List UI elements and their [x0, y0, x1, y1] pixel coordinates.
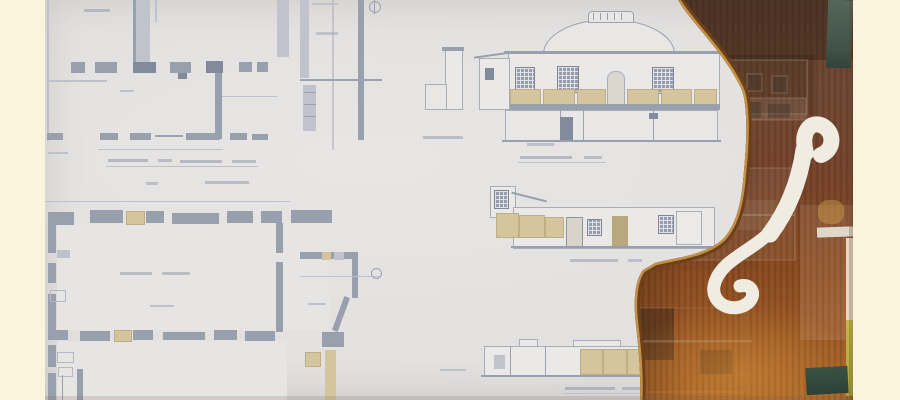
- partition-line: [560, 110, 561, 140]
- floor-slab: [503, 104, 720, 110]
- tower-cap: [442, 47, 464, 51]
- annotation-mark: [308, 303, 326, 305]
- section-title-mark: [584, 156, 602, 159]
- lantern-tick: [614, 13, 615, 20]
- dim-line: [98, 149, 223, 150]
- plan-wall-block: [133, 62, 156, 73]
- white-block: [676, 211, 702, 245]
- tower-wall: [445, 50, 463, 110]
- plan-wall-seg: [48, 225, 56, 253]
- ghost-block: [733, 102, 761, 118]
- photo-edge-shade: [849, 0, 853, 400]
- section-door: [612, 216, 628, 246]
- plan-wall: [358, 0, 364, 140]
- section-door: [566, 217, 583, 248]
- stair-line: [304, 104, 316, 105]
- annotation-mark: [48, 152, 68, 154]
- wood-light-right: [800, 205, 853, 340]
- ghost-window: [723, 72, 737, 88]
- base-line: [511, 246, 715, 248]
- angled-wall: [332, 296, 350, 332]
- plan-wall-seg: [227, 211, 253, 223]
- ghost-line: [645, 214, 795, 216]
- white-block: [494, 355, 505, 369]
- ghost-drawing-overlay: [628, 0, 853, 392]
- plan-wall-band: [300, 0, 309, 78]
- ghost-frame: [712, 60, 807, 114]
- lantern-tick: [621, 13, 622, 20]
- ghost-band: [714, 98, 806, 120]
- paper-crease: [332, 0, 334, 150]
- label-mark: [570, 259, 618, 262]
- plan-wall-seg: [133, 330, 153, 340]
- section-wall: [508, 52, 720, 110]
- plan-wall-seg: [90, 210, 123, 223]
- plan-wall-seg: [261, 211, 282, 223]
- plan-wall-block: [170, 62, 191, 73]
- section-body: [513, 207, 715, 249]
- plan-wall-seg: [276, 262, 283, 332]
- door-mark: [178, 73, 187, 79]
- plan-wall-band: [133, 0, 150, 62]
- violin-grain-texture: [600, 0, 853, 400]
- annotation-mark: [120, 90, 134, 92]
- plan-wall-seg: [291, 210, 332, 223]
- ghost-frame: [640, 308, 745, 392]
- plan-line: [155, 0, 157, 22]
- basement-door: [560, 117, 573, 140]
- wood-shade: [700, 55, 815, 115]
- plan-wall-block: [239, 62, 252, 72]
- room-label-mark: [150, 305, 174, 307]
- partition-line: [510, 346, 511, 375]
- plan-wall-seg: [214, 330, 237, 340]
- window-grid: [658, 215, 674, 234]
- title-underline: [563, 393, 647, 394]
- plan-line: [300, 79, 382, 81]
- background-light-strip: [846, 238, 853, 323]
- niche-mark: [57, 250, 70, 258]
- ghost-window: [747, 74, 762, 91]
- window-grid: [515, 67, 535, 94]
- violin-body: [635, 0, 853, 400]
- section-title-mark: [520, 156, 572, 159]
- basement-wall: [505, 110, 718, 142]
- background-glint: [818, 200, 844, 224]
- plan-title-mark: [108, 159, 148, 162]
- background-panel-teal: [826, 0, 853, 68]
- tan-strip: [325, 350, 336, 400]
- plan-wall-seg: [146, 211, 164, 223]
- plan-wall-seg: [48, 263, 56, 283]
- plan-wall-seg: [172, 213, 219, 224]
- f-hole-upper-eye: [804, 124, 831, 155]
- section-dome: [543, 19, 675, 54]
- cornice-line: [504, 51, 720, 54]
- ghost-block: [768, 104, 790, 118]
- window-grid: [494, 190, 509, 209]
- window-grid: [587, 219, 602, 236]
- background-olive-strip: [846, 320, 853, 396]
- closet-mark: [58, 367, 73, 377]
- plan-wall-seg: [276, 223, 283, 253]
- plan-wall-seg: [48, 373, 56, 400]
- wainscot-panel: [577, 89, 606, 106]
- ghost-block: [700, 350, 732, 374]
- plan-wall-line: [133, 0, 136, 62]
- lantern-tick: [600, 13, 601, 20]
- boundary-line: [45, 201, 290, 202]
- base-line: [481, 375, 653, 377]
- f-hole-stem: [770, 150, 804, 234]
- roof-bump: [573, 340, 621, 349]
- plan-wall-block: [257, 62, 268, 72]
- plan-wall-seg: [230, 133, 247, 140]
- tan-block: [126, 211, 145, 225]
- north-symbol: [369, 1, 381, 13]
- partition-line: [653, 110, 654, 140]
- stair-line: [304, 116, 316, 117]
- roof-slope: [511, 192, 546, 203]
- plan-wall-seg: [100, 133, 118, 140]
- plan-wall-seg: [163, 332, 205, 340]
- plan-wall-seg: [48, 294, 56, 332]
- banner-image: { "scene": { "type": "photograph-collage…: [0, 0, 900, 400]
- f-hole-lower-curl: [714, 230, 772, 308]
- tan-panel: [496, 213, 519, 238]
- wood-shade: [628, 140, 758, 270]
- dim-symbol: [371, 268, 382, 279]
- plan-room-fill: [57, 224, 329, 330]
- plan-title-mark: [180, 160, 222, 163]
- wainscot-panel: [543, 89, 575, 106]
- plan-wall: [47, 0, 49, 141]
- annex-window: [485, 68, 494, 80]
- ground-line: [502, 140, 721, 142]
- ghost-frame: [645, 168, 795, 260]
- plan-wall-seg: [245, 331, 275, 341]
- plan-wall-seg: [48, 330, 68, 340]
- wainscot-panel: [694, 89, 717, 106]
- annotation-mark: [146, 182, 158, 185]
- title-underline: [518, 162, 606, 163]
- violin-highlight: [627, 300, 853, 400]
- tan-block: [305, 352, 321, 367]
- section-body: [484, 346, 653, 377]
- plan-wall-seg: [80, 331, 110, 341]
- arch-niche: [607, 71, 625, 106]
- plan-wall-block: [322, 332, 344, 347]
- partition-line: [583, 110, 584, 140]
- plan-wall-seg: [48, 345, 56, 367]
- stair-mark: [50, 290, 66, 302]
- lantern-tick: [607, 13, 608, 20]
- ghost-block: [640, 308, 674, 360]
- ghost-block: [688, 194, 724, 240]
- ghost-window: [772, 76, 787, 93]
- label-mark: [628, 259, 642, 262]
- title-underline: [106, 166, 258, 167]
- tan-panel: [519, 215, 545, 238]
- violin-purfling-line: [635, 0, 747, 400]
- ghost-band: [737, 200, 777, 230]
- plan-title-mark: [232, 160, 256, 163]
- plan-wall-seg: [252, 134, 268, 140]
- plan-wall-seg: [77, 369, 83, 400]
- tan-block: [322, 252, 331, 260]
- north-symbol-line: [374, 0, 375, 14]
- plan-wall: [215, 73, 222, 139]
- plan-wall-seg: [352, 252, 358, 298]
- room-label-mark: [162, 272, 190, 275]
- plan-wall-seg: [47, 133, 63, 140]
- stair-block: [303, 85, 316, 131]
- plan-line: [312, 3, 338, 5]
- tan-panel: [603, 349, 627, 375]
- plan-title-mark: [158, 159, 172, 162]
- plan-wall-block: [206, 61, 223, 73]
- annotation-mark: [440, 369, 466, 371]
- photo-bottom-shade: [45, 396, 853, 400]
- dome-lantern: [588, 11, 634, 23]
- annex-roof: [474, 51, 512, 58]
- background-white-bar: [817, 226, 853, 237]
- plan-wall-block: [71, 62, 85, 73]
- plan-wall-seg: [300, 252, 356, 259]
- tan-block: [114, 330, 132, 342]
- ghost-block: [652, 180, 680, 218]
- label-mark: [565, 387, 615, 390]
- room-label-mark: [120, 272, 152, 275]
- tower-wall: [490, 186, 516, 218]
- annotation-mark: [205, 181, 249, 184]
- plan-wall-block: [95, 62, 117, 73]
- wood-shade-top: [660, 0, 853, 60]
- wainscot-panel: [627, 89, 659, 106]
- annex-wall: [479, 58, 510, 110]
- plan-wall-block: [334, 252, 344, 260]
- annotation-mark: [316, 32, 338, 35]
- label-mark: [423, 136, 463, 139]
- lantern-tick: [593, 13, 594, 20]
- plan-line: [155, 135, 183, 137]
- dim-line: [300, 276, 380, 277]
- tan-panel: [580, 349, 603, 375]
- ghost-line: [640, 340, 752, 343]
- low-wall: [425, 84, 447, 110]
- partition-line: [545, 346, 546, 375]
- plan-wall-seg: [48, 212, 74, 225]
- plan-line: [62, 375, 63, 400]
- plan-line: [222, 96, 277, 97]
- tan-panel: [627, 349, 650, 375]
- closet-mark: [57, 352, 74, 363]
- window-grid: [557, 66, 579, 93]
- photo-area: [45, 0, 853, 400]
- tan-panel: [545, 217, 564, 238]
- plan-wall-seg: [130, 133, 151, 140]
- plan-line: [47, 80, 107, 82]
- stair-line: [304, 92, 316, 93]
- plan-wall-band: [277, 0, 289, 57]
- background-green-patch: [805, 366, 848, 395]
- wainscot-panel: [510, 89, 541, 106]
- plan-wall-seg: [186, 133, 220, 140]
- window-grid: [652, 67, 674, 94]
- violin-side-shade: [628, 0, 853, 400]
- label-mark: [622, 387, 644, 390]
- violin-photo-svg: [45, 0, 853, 400]
- basement-sill: [649, 113, 658, 119]
- roof-bump: [519, 339, 538, 348]
- plan-room-fill: [57, 341, 287, 400]
- annotation-mark: [84, 9, 110, 12]
- wainscot-panel: [661, 89, 692, 106]
- label-mark: [527, 143, 554, 146]
- violin-edge-rim: [635, 0, 747, 400]
